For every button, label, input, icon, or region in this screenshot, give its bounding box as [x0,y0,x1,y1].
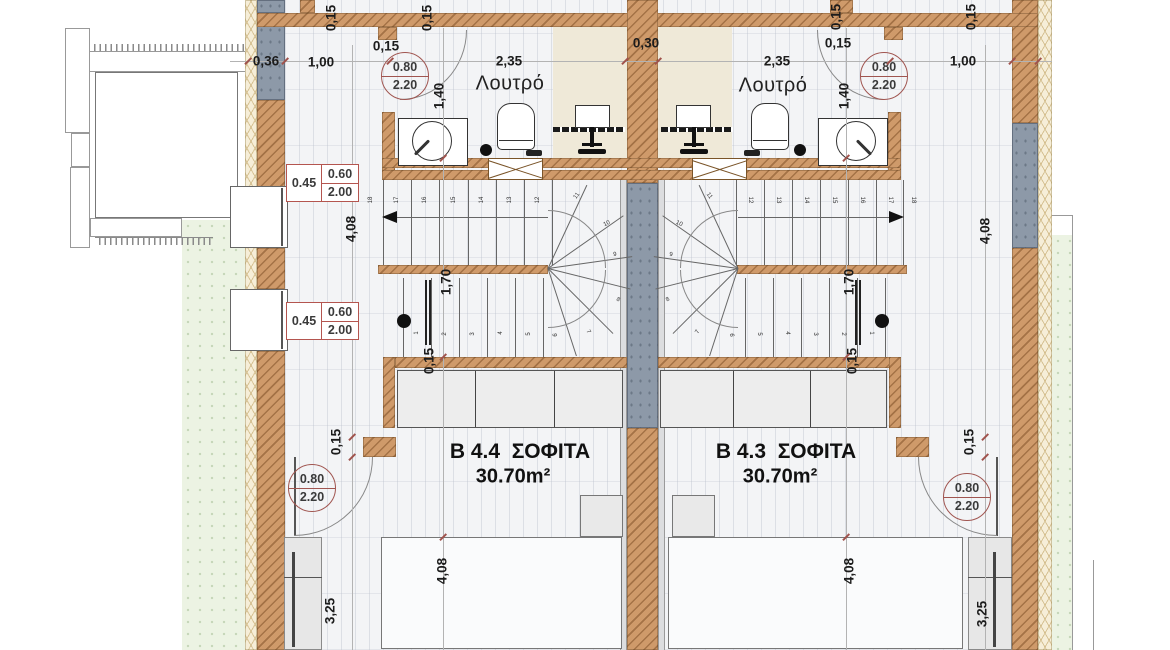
dimension-tick [981,453,988,460]
stair-number: 3 [470,332,476,335]
dimension-label: 0,36 [253,54,279,69]
stair-number: 15 [831,197,837,204]
dimension-label: 0,15 [422,348,437,374]
door-size-tag: 0.802.20 [860,52,908,100]
dimension-tick [439,533,446,540]
dimension-label: 4,08 [978,218,993,244]
dimension-label: 2,35 [764,54,790,69]
dimension-label: 4,08 [344,216,359,242]
dimension-tick [348,453,355,460]
dimension-tick [842,533,849,540]
dimension-label: 0,15 [420,5,435,31]
stair-number: 1 [868,331,874,334]
stair-number: 3 [812,332,818,335]
dimension-label: 0,15 [829,4,844,30]
dimension-tick [842,154,849,161]
dimension-label: 3,25 [975,601,990,627]
stair-number: 9 [613,252,617,258]
dimension-tick [1008,57,1015,64]
stair-number: 16 [422,197,428,204]
stair-number: 6 [553,333,559,336]
floor-plan: B 4.4 ΣΟΦΙΤΑ 30.70m² B 4.3 ΣΟΦΙΤΑ 30.70m… [0,0,1170,650]
stair-number: 13 [507,197,513,204]
stair-number: 11 [705,192,713,201]
stair-number: 2 [840,332,846,335]
dimension-tick [439,154,446,161]
stair-number: 7 [585,329,592,335]
stair-number: 18 [368,197,374,204]
dimension-label: 4,08 [435,558,450,584]
dimension-label: 0,15 [329,429,344,455]
stair-number: 12 [535,197,541,204]
stair-number: 8 [665,297,671,304]
dimension-tick [348,433,355,440]
stair-number: 14 [479,197,485,204]
dimension-label: 3,25 [323,598,338,624]
dimension-label: 0,15 [825,36,851,51]
stair-number: 11 [573,192,581,201]
door-size-tag: 0.802.20 [288,464,336,512]
stair-number: 8 [615,297,621,304]
stair-number: 17 [887,197,893,204]
dimension-label: 0,15 [962,429,977,455]
stair-number: 13 [775,197,781,204]
stair-number: 4 [498,331,504,334]
dimension-label: 1,70 [439,269,454,295]
dimension-label: 0,15 [324,5,339,31]
stair-number: 6 [728,333,734,336]
stair-number: 9 [669,252,673,258]
window-size-tag: 0.450.602.00 [286,164,359,202]
stair-number: 7 [695,329,702,335]
dimension-tick [1034,57,1041,64]
dimension-label: 1,40 [837,83,852,109]
dimension-tick [281,57,288,64]
stair-number: 5 [526,332,532,335]
dimension-tick [654,57,661,64]
dimension-label: 2,35 [496,54,522,69]
dimension-label: 0,15 [373,39,399,54]
dimension-label: 4,08 [842,558,857,584]
dimension-tick [244,57,251,64]
stair-number: 14 [803,197,809,204]
dimension-label: 0,30 [633,36,659,51]
dimension-tick [621,57,628,64]
annotation-overlay: 0,361,000,152,350,302,350,151,000,150,15… [0,0,1170,650]
stair-number: 10 [675,220,684,228]
stair-number: 5 [756,332,762,335]
dimension-label: 0,15 [845,348,860,374]
dimension-label: 0,15 [964,4,979,30]
door-size-tag: 0.802.20 [943,473,991,521]
dimension-label: 1,70 [842,269,857,295]
stair-number: 16 [859,197,865,204]
dimension-label: 1,40 [432,83,447,109]
window-size-tag: 0.450.602.00 [286,302,359,340]
dimension-tick [981,433,988,440]
stair-number: 2 [442,332,448,335]
stair-number: 12 [747,197,753,204]
door-size-tag: 0.802.20 [381,52,429,100]
stair-number: 4 [784,331,790,334]
stair-number: 15 [451,197,457,204]
dimension-label: 1,00 [308,55,334,70]
stair-number: 18 [910,197,916,204]
stair-number: 1 [414,331,420,334]
stair-number: 10 [603,220,612,228]
dimension-tick [439,353,446,360]
dimension-label: 1,00 [950,54,976,69]
stair-number: 17 [394,197,400,204]
